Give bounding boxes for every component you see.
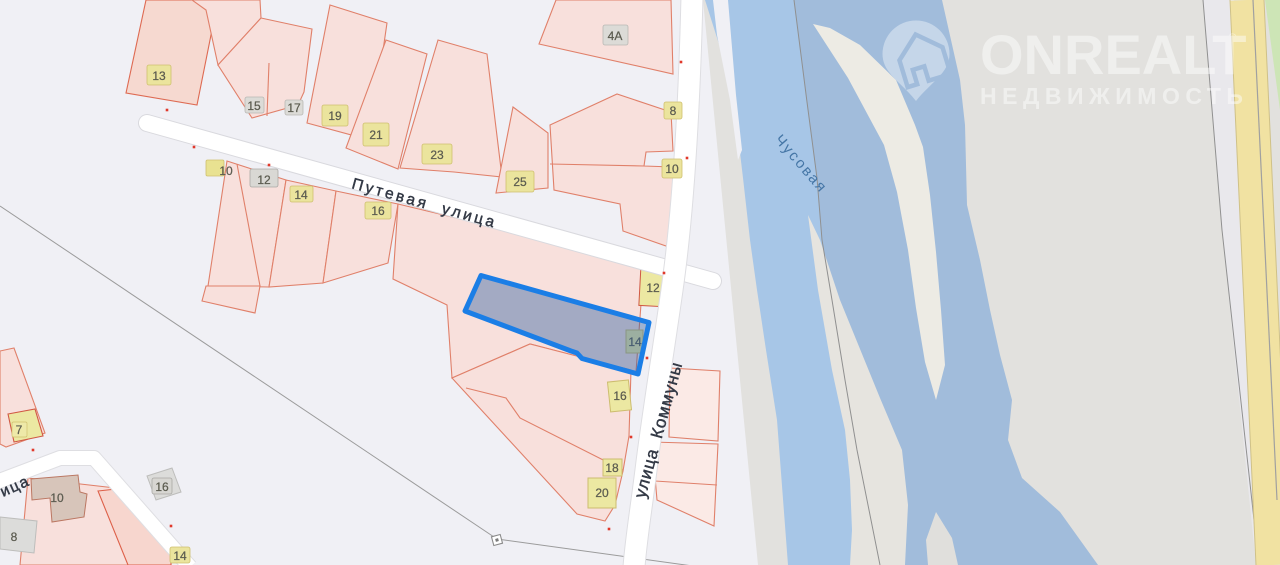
svg-text:16: 16 — [371, 204, 385, 218]
svg-text:18: 18 — [605, 461, 619, 475]
svg-text:13: 13 — [152, 69, 166, 83]
svg-text:17: 17 — [287, 101, 301, 115]
svg-text:12: 12 — [257, 173, 271, 187]
svg-text:8: 8 — [11, 530, 18, 544]
svg-text:10: 10 — [219, 164, 233, 178]
svg-text:21: 21 — [369, 128, 383, 142]
svg-text:10: 10 — [50, 491, 64, 505]
svg-text:20: 20 — [595, 486, 609, 500]
svg-text:14: 14 — [173, 549, 187, 563]
svg-text:8: 8 — [670, 104, 677, 118]
svg-text:10: 10 — [665, 162, 679, 176]
svg-text:ONREALT: ONREALT — [980, 23, 1247, 86]
svg-text:4А: 4А — [608, 29, 623, 43]
svg-text:12: 12 — [646, 281, 660, 295]
svg-text:19: 19 — [328, 109, 342, 123]
svg-text:23: 23 — [430, 148, 444, 162]
svg-text:16: 16 — [613, 389, 627, 403]
svg-text:7: 7 — [16, 423, 23, 437]
svg-text:15: 15 — [247, 99, 261, 113]
svg-text:®: ® — [1228, 31, 1237, 45]
svg-text:25: 25 — [513, 175, 527, 189]
svg-text:16: 16 — [155, 480, 169, 494]
svg-text:14: 14 — [294, 188, 308, 202]
svg-text:НЕДВИЖИМОСТЬ: НЕДВИЖИМОСТЬ — [980, 83, 1248, 109]
